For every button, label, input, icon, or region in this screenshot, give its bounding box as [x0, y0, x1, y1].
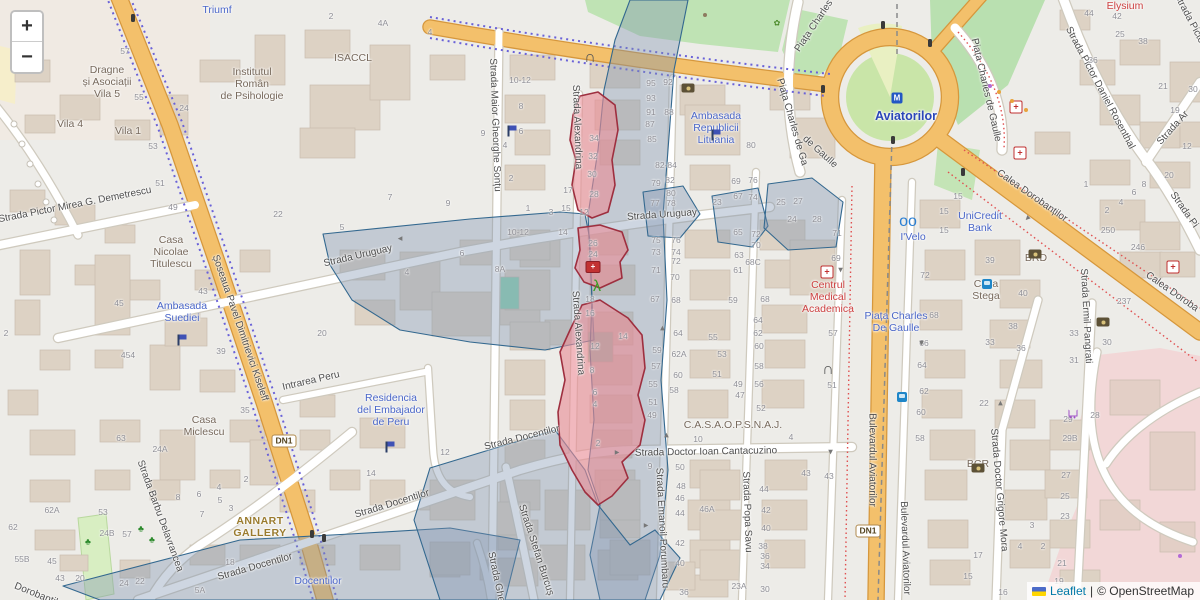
building: [370, 45, 410, 100]
building: [925, 350, 965, 378]
building: [765, 460, 807, 490]
building: [95, 350, 123, 368]
building: [160, 430, 195, 480]
building: [920, 200, 960, 228]
building: [1110, 380, 1160, 415]
attribution-separator: |: [1090, 584, 1093, 598]
building: [1090, 160, 1130, 185]
building: [330, 470, 360, 490]
building: [305, 30, 350, 58]
building: [95, 470, 130, 490]
leaflet-link[interactable]: Leaflet: [1050, 584, 1086, 598]
building: [930, 560, 970, 585]
building: [762, 500, 807, 530]
building: [975, 240, 1020, 275]
building: [165, 318, 207, 346]
building: [30, 430, 75, 455]
building: [1180, 122, 1200, 147]
building: [115, 120, 150, 140]
building: [1010, 540, 1050, 568]
building: [130, 280, 160, 300]
building: [1010, 440, 1050, 470]
building: [30, 480, 70, 502]
zoom-in-button[interactable]: +: [12, 12, 42, 42]
building: [20, 250, 50, 295]
building: [60, 95, 100, 120]
building: [310, 85, 380, 130]
building: [1140, 222, 1180, 250]
building: [762, 305, 807, 333]
service-east: [898, 182, 912, 600]
building: [765, 540, 805, 568]
building: [685, 105, 740, 155]
attribution-bar: Leaflet | © OpenStreetMap: [1027, 582, 1200, 600]
building: [688, 310, 730, 340]
building: [1150, 432, 1195, 490]
building: [510, 400, 545, 430]
building: [1100, 200, 1145, 230]
building: [700, 550, 740, 580]
building: [100, 420, 140, 442]
building: [25, 115, 55, 133]
building: [10, 190, 45, 212]
zoom-control: + −: [10, 10, 44, 74]
map-canvas[interactable]: Șoseaua Pavel Dimitrievici KiseleffStrad…: [0, 0, 1200, 600]
building: [360, 418, 405, 448]
overlay-red-north[interactable]: [570, 92, 618, 218]
building: [430, 55, 465, 80]
building: [60, 555, 88, 571]
building: [700, 470, 740, 500]
building: [762, 380, 804, 408]
building: [255, 35, 285, 85]
overlay-red-mid[interactable]: [575, 225, 628, 288]
building: [690, 350, 730, 378]
overlay-blue-corridor[interactable]: [588, 0, 688, 600]
zoom-out-button[interactable]: −: [12, 42, 42, 72]
building: [8, 390, 38, 415]
osm-attribution: © OpenStreetMap: [1097, 584, 1194, 598]
building: [928, 520, 968, 548]
building: [210, 470, 240, 488]
building: [35, 530, 75, 550]
intrarea-peru: [283, 372, 425, 400]
building: [300, 128, 355, 158]
map-tiles: [0, 0, 1200, 600]
building: [150, 480, 180, 500]
building: [200, 60, 240, 82]
building: [1035, 132, 1070, 154]
building: [370, 480, 405, 505]
building: [690, 270, 730, 300]
building: [40, 350, 70, 370]
building: [925, 250, 965, 280]
route-badge: DN1: [271, 435, 296, 448]
overlay-blue-ne-2[interactable]: [764, 178, 843, 250]
building: [150, 345, 180, 390]
building: [765, 340, 805, 368]
building: [510, 55, 555, 80]
building: [690, 165, 730, 190]
building: [1120, 40, 1160, 65]
building: [515, 130, 550, 155]
building: [1160, 252, 1195, 277]
building: [920, 300, 962, 330]
building: [230, 420, 265, 442]
route-aviatorilor: [845, 186, 852, 600]
building: [922, 390, 962, 418]
building: [1005, 490, 1047, 520]
building: [200, 370, 235, 392]
ukraine-flag-icon: [1032, 587, 1046, 596]
building: [925, 470, 967, 500]
building: [688, 390, 728, 418]
building: [240, 250, 270, 272]
building: [15, 300, 40, 335]
overlay-blue-ne-1[interactable]: [712, 188, 768, 247]
building: [505, 165, 545, 190]
building: [505, 95, 545, 123]
building: [930, 430, 975, 460]
building: [700, 510, 742, 540]
building: [505, 360, 545, 395]
overlay-blue-fan[interactable]: [323, 212, 594, 350]
route-badge: DN1: [855, 525, 880, 538]
